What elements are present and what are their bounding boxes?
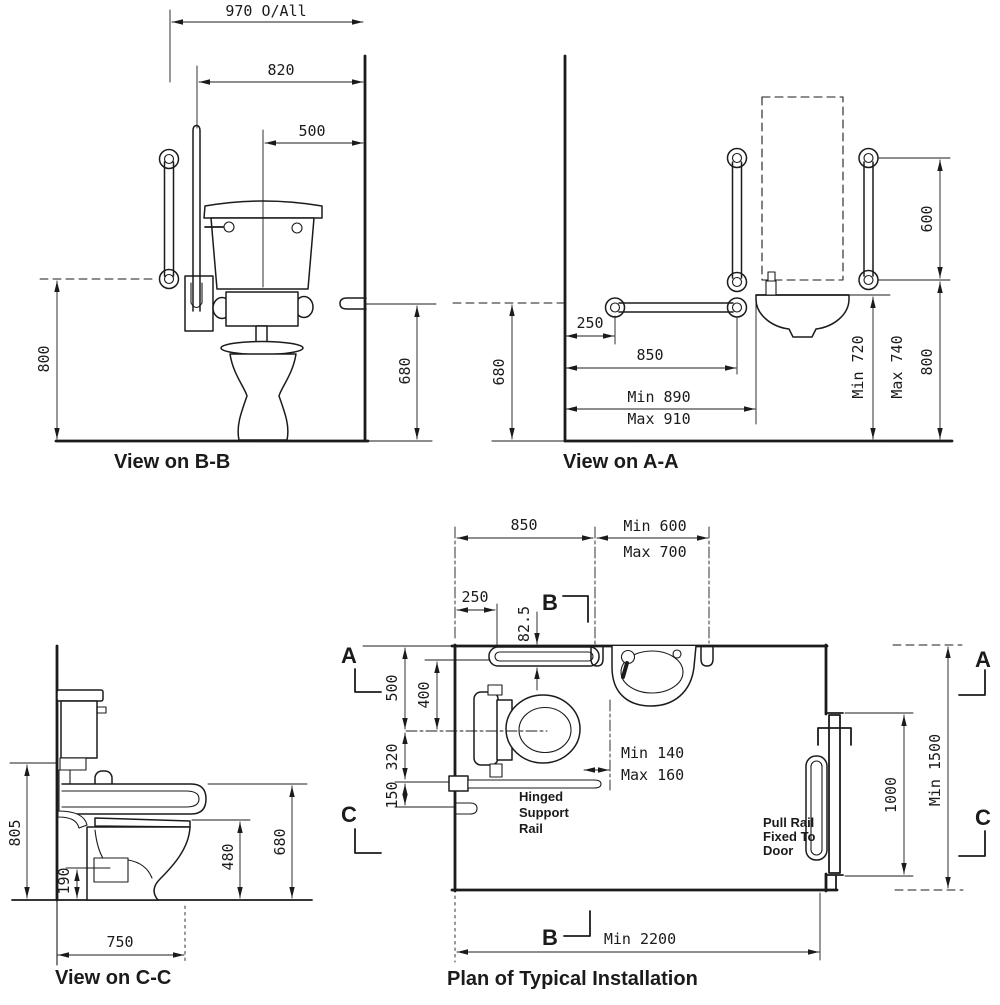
dim-label-680: 680 (396, 357, 414, 384)
pan-pedestal (230, 354, 296, 440)
folded-hinged-rail (185, 126, 213, 332)
dim-label-820: 820 (267, 61, 294, 79)
dim-label-680: 680 (490, 358, 508, 385)
trap-box (94, 858, 128, 882)
dim-label-max740: Max 740 (888, 335, 906, 398)
dim-label-250: 250 (576, 314, 603, 332)
vertical-rail-end-right (701, 646, 713, 666)
dim-250: 250 (566, 314, 615, 344)
label-pull-rail: Pull Rail (763, 815, 814, 830)
dim-label-max160: Max 160 (621, 766, 684, 784)
dim-label-min720: Min 720 (849, 335, 867, 398)
release-box (185, 276, 213, 331)
pan-rim (221, 342, 303, 355)
dim-min600-max700: Min 600 Max 700 (597, 517, 709, 643)
dim-label-max910: Max 910 (627, 410, 690, 428)
seat-side (95, 818, 190, 827)
hinged-support-rail-side (62, 784, 206, 814)
horizontal-grab-rail (606, 298, 747, 317)
dim-label-850: 850 (636, 346, 663, 364)
marker-letter-c: C (975, 805, 991, 830)
dim-label-max700: Max 700 (623, 543, 686, 561)
dim-320: 320 (383, 733, 405, 779)
accessible-wc-installation-drawing: 970 O/All 820 500 800 680 View on B-B (0, 0, 1000, 1000)
cistern-lid (57, 690, 103, 701)
wall-rail-stub (340, 298, 366, 309)
dim-label-190: 190 (55, 867, 73, 894)
dim-680: 680 (453, 303, 564, 439)
dim-label-480: 480 (219, 843, 237, 870)
label-rail: Rail (519, 821, 543, 836)
dim-label-805: 805 (6, 819, 24, 846)
cistern-base (60, 758, 86, 770)
label-hinged: Hinged (519, 789, 563, 804)
flush-lever (97, 707, 106, 713)
tap-handle (768, 272, 775, 281)
dim-label-min600: Min 600 (623, 517, 686, 535)
dim-label-1000: 1000 (882, 777, 900, 813)
dim-label-82_5: 82.5 (515, 606, 533, 642)
door-leaf (829, 715, 840, 873)
toilet-roll-holder-plan (456, 803, 477, 814)
cistern-plan (474, 692, 498, 765)
wash-basin-plan (612, 646, 696, 706)
door (806, 715, 851, 873)
label-fixed-to: Fixed To (763, 829, 816, 844)
dim-150: 150 (383, 781, 455, 808)
dim-label-680: 680 (271, 828, 289, 855)
marker-letter-a: A (341, 643, 357, 668)
toilet-side-view (57, 690, 206, 900)
dim-label-250: 250 (461, 588, 488, 606)
flush-lever-plan (488, 685, 502, 695)
vertical-grab-rail (160, 150, 179, 289)
cistern-body (61, 701, 97, 758)
dim-480: 480 (192, 820, 250, 898)
marker-letter-b: B (542, 590, 558, 615)
view-bb: 970 O/All 820 500 800 680 View on B-B (35, 2, 436, 473)
plan-title: Plan of Typical Installation (447, 968, 698, 990)
tap (766, 281, 776, 295)
view-aa-title: View on A-A (563, 451, 679, 473)
marker-letter-c: C (341, 802, 357, 827)
marker-letter-b: B (542, 925, 558, 950)
label-support: Support (519, 805, 569, 820)
dim-500: 500 (363, 646, 452, 729)
dim-min1500: Min 1500 (893, 645, 963, 890)
view-aa: 250 850 Min 890 Max 910 680 Min 720 Max … (453, 56, 952, 473)
vertical-grab-rail-left (728, 149, 747, 292)
dim-label-320: 320 (383, 743, 401, 770)
dim-500: 500 (265, 122, 363, 143)
dim-800: 800 (35, 279, 157, 439)
dim-label-600: 600 (918, 205, 936, 232)
section-marker-b-bottom: B (542, 911, 590, 950)
dim-min140-max160: Min 140 Max 160 (584, 700, 684, 790)
dim-label-800: 800 (918, 348, 936, 375)
section-marker-c-left: C (341, 802, 381, 853)
dim-600: 600 (878, 158, 950, 278)
dim-820: 820 (197, 61, 363, 128)
basin-bowl (756, 295, 849, 337)
section-marker-a-left: A (341, 643, 381, 692)
label-door: Door (763, 843, 793, 858)
dim-label-min2200: Min 2200 (604, 930, 676, 948)
dim-label-850: 850 (510, 516, 537, 534)
dim-label-970-overall: 970 O/All (225, 2, 306, 20)
seat-pad (226, 292, 298, 326)
toilet-front-view (204, 130, 322, 440)
dim-750: 750 (58, 906, 185, 962)
dim-label-min140: Min 140 (621, 744, 684, 762)
dim-label-800: 800 (35, 345, 53, 372)
dim-680: 680 (396, 306, 417, 439)
dim-805: 805 (6, 763, 57, 898)
dim-label-500: 500 (298, 122, 325, 140)
plan-view: 850 Min 600 Max 700 250 82.5 500 400 (341, 516, 991, 990)
view-bb-title: View on B-B (114, 451, 230, 473)
dim-label-min890: Min 890 (627, 388, 690, 406)
marker-letter-a: A (975, 647, 991, 672)
wash-basin (756, 272, 849, 337)
dim-250: 250 (457, 588, 497, 645)
dim-label-150: 150 (383, 781, 401, 808)
dim-label-500: 500 (383, 674, 401, 701)
view-cc: 805 190 480 680 750 View on C-C (6, 646, 312, 989)
pull-rail (806, 756, 827, 860)
dim-label-min1500: Min 1500 (926, 734, 944, 806)
dim-1000: 1000 (845, 713, 913, 876)
section-marker-a-right: A (959, 647, 991, 695)
view-cc-title: View on C-C (55, 967, 171, 989)
dim-min2200: Min 2200 (455, 893, 820, 962)
dim-label-750: 750 (106, 933, 133, 951)
hinged-support-rail-label: Hinged Support Rail (519, 789, 569, 836)
dim-min720-max740: Min 720 Max 740 (849, 295, 906, 439)
section-marker-c-right: C (959, 805, 991, 856)
vertical-grab-rail-right (859, 149, 878, 290)
technical-drawing-sheet: 970 O/All 820 500 800 680 View on B-B (0, 0, 1000, 1000)
mirror-dashed (762, 97, 843, 280)
dim-label-400: 400 (415, 681, 433, 708)
dim-680: 680 (208, 784, 307, 898)
section-marker-b-top: B (542, 590, 588, 622)
